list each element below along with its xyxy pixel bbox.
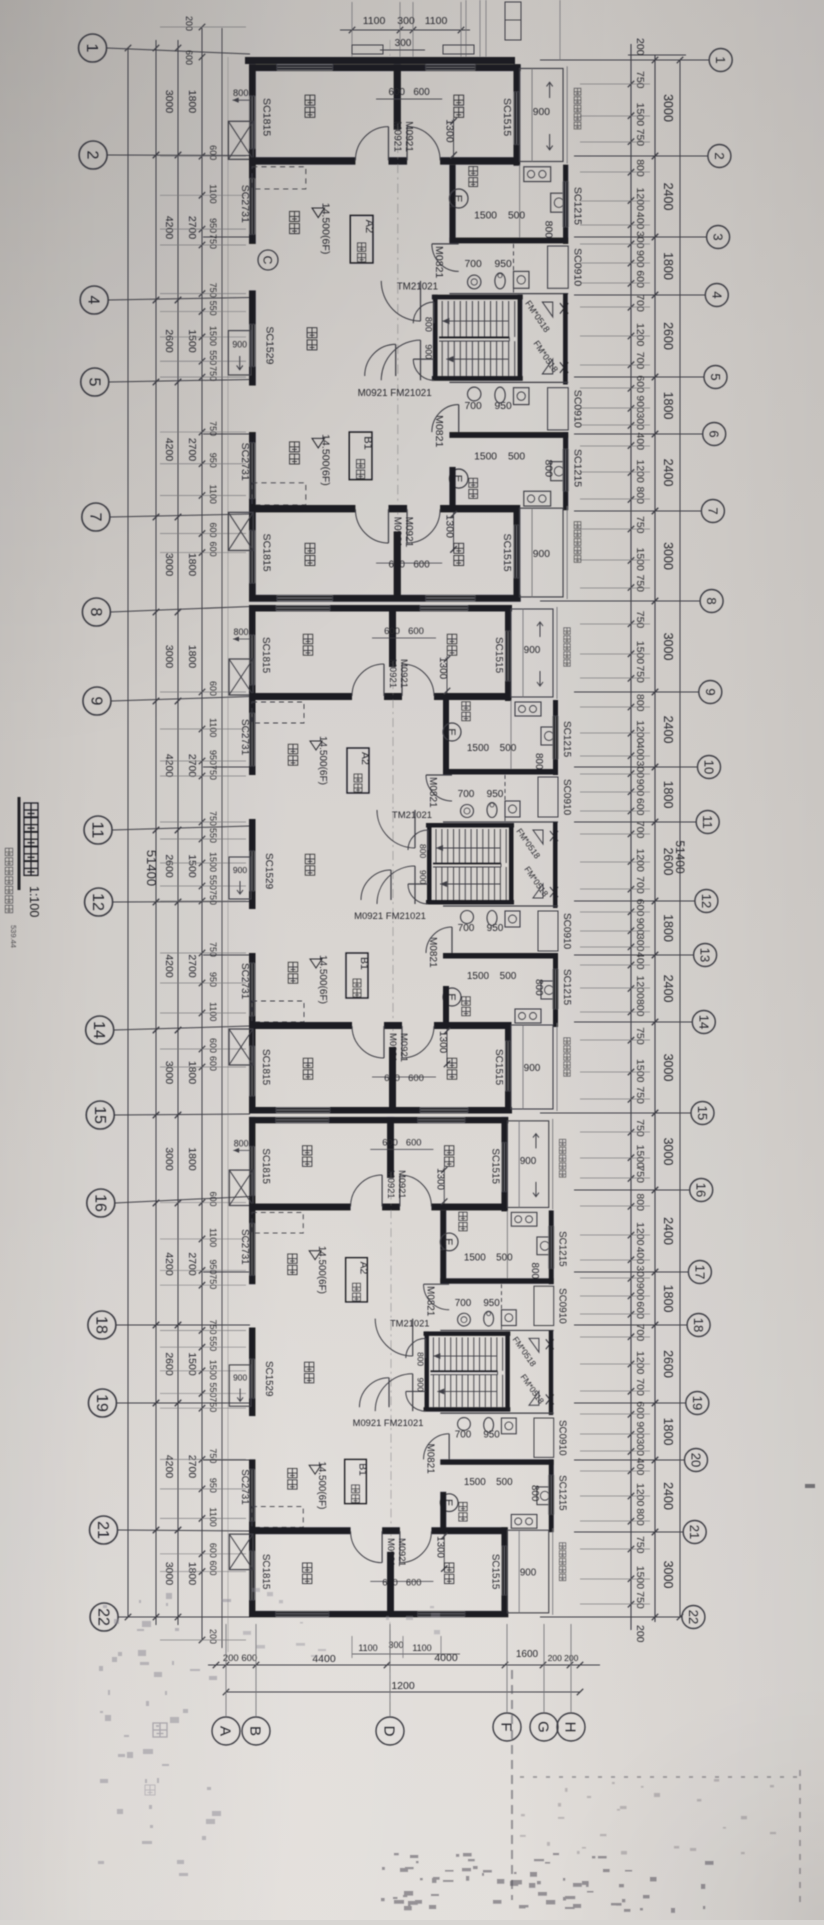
svg-text:2600: 2600: [163, 1352, 175, 1376]
svg-text:18: 18: [92, 1316, 109, 1334]
svg-text:1800: 1800: [661, 781, 675, 809]
svg-text:1800: 1800: [186, 553, 198, 577]
svg-text:550: 550: [208, 1382, 218, 1397]
svg-text:750: 750: [208, 1397, 218, 1412]
svg-text:1800: 1800: [186, 90, 198, 114]
svg-text:750: 750: [208, 1274, 218, 1289]
svg-text:2400: 2400: [661, 1217, 675, 1245]
svg-text:4: 4: [709, 291, 724, 298]
svg-text:1500: 1500: [634, 548, 646, 572]
svg-text:750: 750: [634, 1027, 646, 1045]
svg-text:1100: 1100: [208, 1228, 218, 1247]
svg-text:750: 750: [634, 1086, 646, 1104]
svg-text:550: 550: [208, 828, 218, 843]
svg-text:17: 17: [692, 1265, 707, 1279]
svg-text:750: 750: [634, 611, 646, 629]
svg-text:4400: 4400: [312, 1653, 336, 1665]
svg-text:12: 12: [699, 894, 714, 908]
svg-text:22: 22: [95, 1608, 112, 1626]
svg-text:400: 400: [634, 212, 646, 230]
svg-text:4200: 4200: [163, 216, 175, 240]
svg-text:2600: 2600: [661, 1350, 675, 1378]
svg-text:2700: 2700: [186, 754, 198, 778]
svg-text:G: G: [535, 1721, 552, 1733]
svg-text:950: 950: [208, 1478, 218, 1493]
svg-text:400: 400: [634, 1458, 646, 1476]
svg-text:700: 700: [634, 294, 646, 312]
svg-text:1200: 1200: [634, 1483, 646, 1507]
svg-text:5: 5: [85, 378, 102, 387]
svg-text:1100: 1100: [412, 1643, 431, 1653]
svg-text:400: 400: [634, 1247, 646, 1265]
svg-text:200: 200: [208, 1629, 218, 1644]
svg-text:750: 750: [208, 765, 218, 780]
svg-text:19: 19: [93, 1394, 110, 1412]
svg-text:51400: 51400: [144, 850, 159, 886]
svg-text:14: 14: [90, 1021, 107, 1039]
svg-text:2400: 2400: [661, 183, 675, 211]
svg-text:1500: 1500: [186, 854, 198, 878]
svg-text:300: 300: [634, 761, 646, 779]
svg-text:3000: 3000: [163, 645, 175, 669]
svg-text:3000: 3000: [661, 1054, 675, 1082]
svg-text:750: 750: [634, 1536, 646, 1554]
svg-text:600: 600: [208, 542, 218, 557]
svg-text:16: 16: [694, 1183, 709, 1197]
svg-text:7: 7: [86, 513, 103, 522]
svg-text:950: 950: [208, 750, 218, 765]
svg-text:1500: 1500: [208, 852, 218, 872]
svg-text:1:100: 1:100: [27, 886, 41, 917]
svg-text:700: 700: [634, 1324, 646, 1342]
svg-text:3000: 3000: [661, 633, 675, 661]
svg-text:1500: 1500: [634, 1566, 646, 1590]
svg-text:3000: 3000: [163, 1562, 175, 1586]
svg-text:700: 700: [634, 821, 646, 839]
svg-text:300: 300: [634, 934, 646, 952]
svg-text:1800: 1800: [661, 252, 675, 280]
svg-text:1100: 1100: [208, 484, 218, 503]
svg-text:1200: 1200: [634, 976, 646, 1000]
svg-text:1500: 1500: [208, 326, 218, 346]
svg-text:900: 900: [634, 1283, 646, 1301]
svg-text:600: 600: [208, 1038, 218, 1053]
svg-text:300: 300: [395, 38, 412, 49]
svg-text:2700: 2700: [186, 1252, 198, 1276]
svg-text:300: 300: [397, 15, 415, 27]
svg-text:2700: 2700: [186, 1455, 198, 1479]
svg-text:550: 550: [208, 875, 218, 890]
svg-text:900: 900: [634, 395, 646, 413]
svg-text:750: 750: [208, 421, 218, 436]
svg-text:800: 800: [634, 159, 646, 177]
svg-text:14: 14: [696, 1015, 711, 1029]
svg-text:2400: 2400: [661, 975, 675, 1003]
svg-text:2600: 2600: [661, 848, 675, 876]
svg-text:1100: 1100: [208, 184, 218, 203]
svg-text:21: 21: [687, 1525, 702, 1539]
svg-text:11: 11: [89, 822, 106, 839]
svg-text:400: 400: [634, 433, 646, 451]
svg-text:600: 600: [634, 1401, 646, 1419]
svg-text:800: 800: [634, 1508, 646, 1526]
svg-text:7: 7: [705, 507, 720, 514]
svg-text:700: 700: [634, 352, 646, 370]
svg-text:3: 3: [711, 233, 726, 240]
svg-text:9: 9: [703, 688, 718, 695]
svg-text:550: 550: [208, 350, 218, 365]
svg-text:3000: 3000: [661, 1561, 675, 1589]
svg-text:4200: 4200: [163, 1455, 175, 1479]
svg-text:16: 16: [91, 1194, 108, 1212]
svg-text:4200: 4200: [163, 438, 175, 462]
svg-text:8: 8: [87, 608, 104, 617]
svg-text:1: 1: [713, 56, 728, 63]
svg-text:1100: 1100: [208, 1002, 218, 1021]
svg-text:300: 300: [634, 1265, 646, 1283]
svg-text:600: 600: [634, 798, 646, 816]
svg-text:B: B: [247, 1726, 264, 1736]
svg-text:1200: 1200: [634, 1222, 646, 1246]
svg-text:900: 900: [634, 1421, 646, 1439]
svg-text:550: 550: [208, 1336, 218, 1351]
svg-text:4200: 4200: [163, 754, 175, 778]
svg-text:600: 600: [208, 523, 218, 538]
svg-text:1500: 1500: [186, 1352, 198, 1376]
svg-text:D: D: [381, 1726, 398, 1737]
svg-text:3000: 3000: [163, 90, 175, 114]
svg-text:1100: 1100: [363, 15, 386, 27]
svg-text:300: 300: [634, 231, 646, 249]
svg-text:300: 300: [634, 1438, 646, 1456]
svg-text:1500: 1500: [634, 1059, 646, 1083]
svg-text:1800: 1800: [661, 1418, 675, 1446]
svg-text:1200: 1200: [634, 188, 646, 212]
svg-text:1500: 1500: [186, 329, 198, 353]
svg-text:1200: 1200: [634, 1351, 646, 1375]
svg-text:600: 600: [634, 270, 646, 288]
svg-text:750: 750: [634, 1119, 646, 1137]
svg-text:800: 800: [634, 486, 646, 504]
svg-text:2700: 2700: [186, 438, 198, 462]
svg-text:C: C: [261, 256, 275, 265]
svg-text:1200: 1200: [634, 720, 646, 744]
svg-text:6: 6: [707, 430, 722, 437]
svg-text:600: 600: [184, 50, 194, 65]
svg-text:1100: 1100: [358, 1643, 377, 1653]
svg-text:2: 2: [84, 151, 101, 160]
svg-text:2400: 2400: [661, 1482, 675, 1510]
svg-text:1500: 1500: [208, 1360, 218, 1380]
svg-text:2400: 2400: [661, 459, 675, 487]
svg-text:5: 5: [708, 373, 723, 380]
svg-text:800: 800: [634, 1193, 646, 1211]
svg-text:22: 22: [686, 1610, 701, 1624]
svg-text:1800: 1800: [186, 1562, 198, 1586]
svg-text:750: 750: [634, 71, 646, 89]
svg-text:750: 750: [634, 1591, 646, 1609]
svg-text:1800: 1800: [661, 392, 675, 420]
svg-text:A: A: [217, 1726, 234, 1736]
svg-text:1800: 1800: [186, 645, 198, 669]
svg-text:11: 11: [700, 815, 715, 829]
svg-text:300: 300: [634, 412, 646, 430]
svg-text:600: 600: [208, 145, 218, 160]
svg-text:750: 750: [208, 1448, 218, 1463]
svg-text:3000: 3000: [661, 542, 675, 570]
svg-text:19: 19: [690, 1396, 705, 1410]
svg-text:21: 21: [94, 1521, 111, 1539]
svg-text:18: 18: [691, 1318, 706, 1332]
svg-text:600: 600: [634, 1301, 646, 1319]
svg-text:539.44: 539.44: [9, 925, 18, 948]
svg-text:3000: 3000: [661, 1138, 675, 1166]
svg-text:15: 15: [695, 1106, 710, 1120]
svg-text:1200: 1200: [634, 849, 646, 873]
svg-text:2600: 2600: [163, 329, 175, 353]
svg-text:1200: 1200: [634, 460, 646, 484]
svg-text:1800: 1800: [661, 1285, 675, 1313]
svg-text:700: 700: [634, 876, 646, 894]
svg-text:750: 750: [208, 890, 218, 905]
svg-text:1100: 1100: [208, 1507, 218, 1526]
svg-text:1600: 1600: [516, 1649, 539, 1660]
svg-text:1200: 1200: [634, 323, 646, 347]
svg-text:750: 750: [208, 1319, 218, 1334]
svg-text:1800: 1800: [661, 914, 675, 942]
svg-text:600: 600: [208, 1561, 218, 1576]
svg-text:600: 600: [634, 375, 646, 393]
svg-text:2: 2: [712, 152, 727, 159]
svg-text:12: 12: [89, 893, 106, 911]
svg-text:200: 200: [184, 16, 194, 31]
svg-text:20: 20: [689, 1453, 704, 1467]
svg-text:4200: 4200: [163, 1252, 175, 1276]
svg-text:750: 750: [634, 516, 646, 534]
svg-text:550: 550: [208, 301, 218, 316]
svg-text:1100: 1100: [425, 15, 448, 27]
svg-text:750: 750: [208, 366, 218, 381]
svg-text:1800: 1800: [186, 1147, 198, 1171]
svg-text:15: 15: [91, 1106, 108, 1124]
svg-text:600: 600: [208, 1192, 218, 1207]
svg-text:H: H: [562, 1722, 579, 1733]
svg-text:4: 4: [85, 296, 102, 305]
svg-text:200 200: 200 200: [548, 1653, 579, 1663]
svg-text:900: 900: [634, 779, 646, 797]
svg-text:1200: 1200: [391, 1680, 415, 1692]
svg-text:900: 900: [634, 918, 646, 936]
svg-text:750: 750: [208, 283, 218, 298]
svg-text:4200: 4200: [163, 954, 175, 978]
svg-text:10: 10: [702, 760, 717, 774]
svg-text:800: 800: [634, 694, 646, 712]
svg-text:2600: 2600: [661, 322, 675, 350]
svg-text:950: 950: [208, 453, 218, 468]
svg-text:750: 750: [208, 811, 218, 826]
svg-text:400: 400: [634, 743, 646, 761]
svg-text:2400: 2400: [661, 716, 675, 744]
svg-text:950: 950: [208, 1259, 218, 1274]
svg-text:1800: 1800: [186, 1061, 198, 1085]
svg-text:13: 13: [698, 948, 713, 962]
svg-text:700: 700: [634, 1378, 646, 1396]
svg-text:600: 600: [208, 1056, 218, 1071]
svg-text:200: 200: [634, 1625, 646, 1643]
svg-text:1500: 1500: [634, 641, 646, 665]
svg-text:400: 400: [634, 952, 646, 970]
svg-text:300: 300: [388, 1640, 403, 1650]
svg-text:1: 1: [83, 44, 100, 53]
svg-text:750: 750: [634, 1165, 646, 1183]
svg-text:600: 600: [208, 681, 218, 696]
svg-text:750: 750: [634, 575, 646, 593]
svg-text:750: 750: [634, 129, 646, 147]
svg-text:800: 800: [634, 999, 646, 1017]
svg-text:750: 750: [208, 942, 218, 957]
svg-text:2700: 2700: [186, 954, 198, 978]
svg-text:8: 8: [704, 597, 719, 604]
svg-text:600: 600: [634, 899, 646, 917]
svg-text:2700: 2700: [186, 216, 198, 240]
svg-text:200: 200: [634, 38, 646, 56]
svg-text:3000: 3000: [163, 1061, 175, 1085]
svg-text:9: 9: [87, 697, 104, 706]
svg-text:950: 950: [208, 218, 218, 233]
svg-text:3000: 3000: [163, 553, 175, 577]
svg-text:2600: 2600: [163, 854, 175, 878]
svg-text:750: 750: [634, 665, 646, 683]
svg-text:200 600: 200 600: [223, 1653, 257, 1664]
svg-text:4000: 4000: [434, 1652, 458, 1664]
svg-text:1100: 1100: [208, 718, 218, 737]
svg-text:750: 750: [208, 234, 218, 249]
svg-text:3000: 3000: [661, 94, 675, 122]
svg-text:900: 900: [634, 250, 646, 268]
svg-text:1500: 1500: [634, 103, 646, 127]
svg-text:3000: 3000: [163, 1147, 175, 1171]
svg-text:950: 950: [208, 972, 218, 987]
svg-text:600: 600: [208, 1543, 218, 1558]
